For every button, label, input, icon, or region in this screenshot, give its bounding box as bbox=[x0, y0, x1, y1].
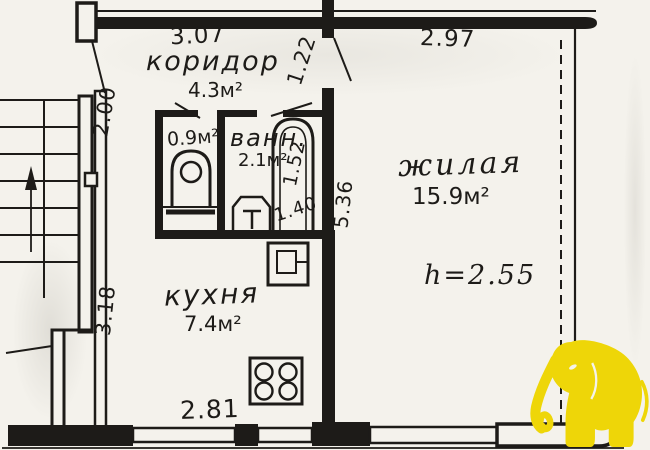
elephant-trunk-curl bbox=[541, 415, 551, 429]
vent-shaft-box bbox=[268, 243, 308, 285]
area-label-wc: 0.9м² bbox=[166, 127, 219, 150]
ceiling-height-label: h=2.55 bbox=[424, 262, 536, 289]
stair-lower-wall bbox=[52, 330, 64, 428]
bath-bottom-wall bbox=[155, 230, 335, 239]
area-label-bath: 2.1м² bbox=[238, 152, 287, 170]
stairwell bbox=[0, 96, 92, 428]
stove-burner bbox=[256, 383, 273, 400]
bottom-wall-left bbox=[8, 425, 133, 446]
bottom-wall-pier bbox=[235, 424, 258, 446]
toilet-seat bbox=[181, 162, 201, 182]
dim-kitchen-width: 2.81 bbox=[180, 396, 241, 423]
wall-niche bbox=[85, 173, 97, 186]
elephant-watermark bbox=[500, 330, 650, 450]
room-label-living: жилая bbox=[398, 148, 524, 182]
living-window bbox=[370, 427, 497, 443]
toilet-bowl bbox=[172, 151, 210, 207]
kitchen-window-2 bbox=[258, 428, 312, 442]
entry-wall-stub bbox=[77, 3, 96, 41]
bath-left-wall bbox=[155, 110, 163, 237]
room-label-kitchen: кухня bbox=[164, 279, 260, 310]
elephant-icon bbox=[535, 340, 646, 447]
elephant-body bbox=[550, 340, 642, 447]
bath-top-wall bbox=[283, 110, 334, 117]
vent-outer-box bbox=[268, 243, 308, 285]
toilet-fixture bbox=[166, 151, 215, 212]
dim-living-depth: 5.36 bbox=[330, 176, 356, 232]
area-label-corridor: 4.3м² bbox=[188, 80, 243, 100]
dim-kitchen-depth: 3.18 bbox=[93, 283, 120, 339]
sink bbox=[233, 197, 270, 230]
elephant-tail bbox=[642, 382, 647, 420]
stair-landing-door bbox=[6, 346, 52, 353]
stove-burner bbox=[256, 364, 273, 381]
kitchen-living-wall bbox=[322, 236, 335, 426]
living-door-leaf bbox=[334, 38, 351, 81]
stove bbox=[250, 358, 302, 404]
stair-up-arrow-icon bbox=[25, 166, 37, 190]
bath-top-wall bbox=[222, 110, 257, 117]
floor-plan-scan: 3.07 коридор 4.3м² 1.22 2.97 2.00 0.9м² … bbox=[0, 0, 650, 450]
left-wall bbox=[95, 91, 106, 428]
area-label-living: 15.9м² bbox=[412, 186, 490, 209]
cross-wall-top bbox=[322, 0, 334, 38]
room-label-corridor: коридор bbox=[146, 48, 280, 75]
dim-living-width: 2.97 bbox=[420, 27, 476, 52]
area-label-kitchen: 7.4м² bbox=[184, 314, 242, 335]
stove-burner bbox=[280, 383, 297, 400]
bottom-wall-junction bbox=[312, 422, 370, 446]
stove-burner bbox=[280, 364, 297, 381]
kitchen-window bbox=[133, 428, 235, 442]
